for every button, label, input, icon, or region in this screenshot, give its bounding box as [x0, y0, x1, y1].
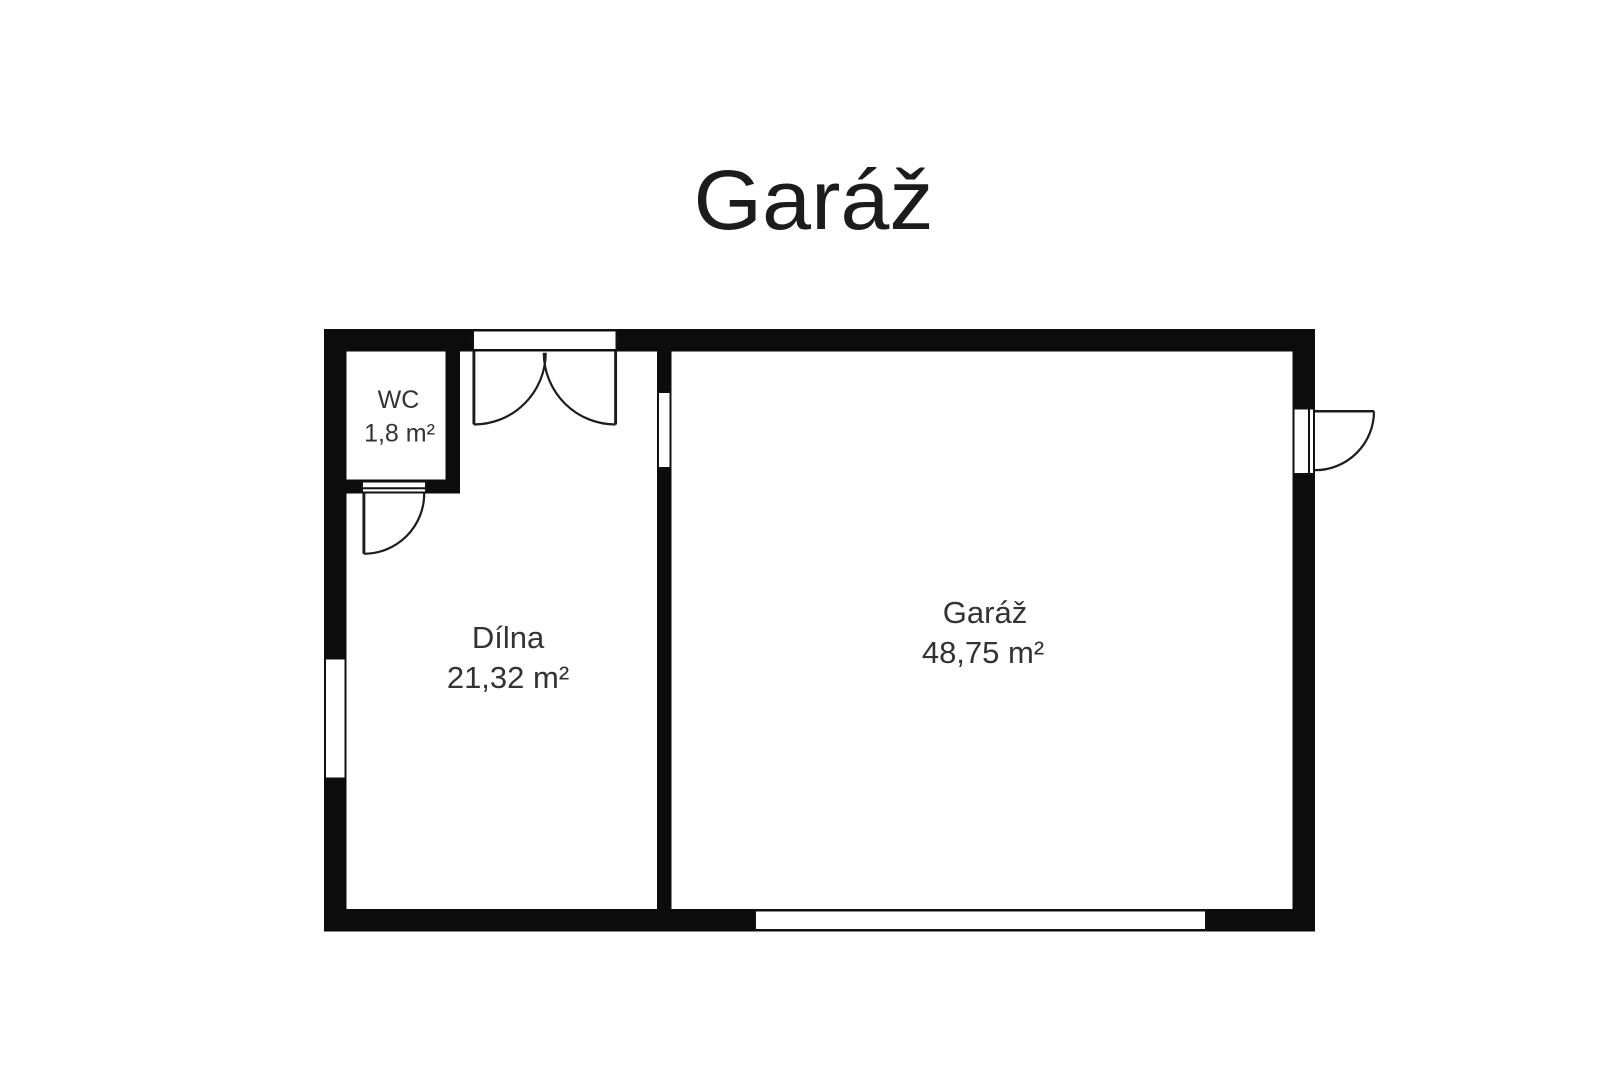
svg-text:Garáž: Garáž — [943, 595, 1027, 630]
svg-text:48,75 m²: 48,75 m² — [922, 635, 1044, 670]
svg-text:Dílna: Dílna — [472, 620, 545, 655]
svg-text:Garáž: Garáž — [694, 153, 934, 247]
svg-text:WC: WC — [378, 386, 420, 414]
svg-text:21,32 m²: 21,32 m² — [447, 660, 569, 695]
svg-text:1,8 m²: 1,8 m² — [364, 420, 435, 448]
